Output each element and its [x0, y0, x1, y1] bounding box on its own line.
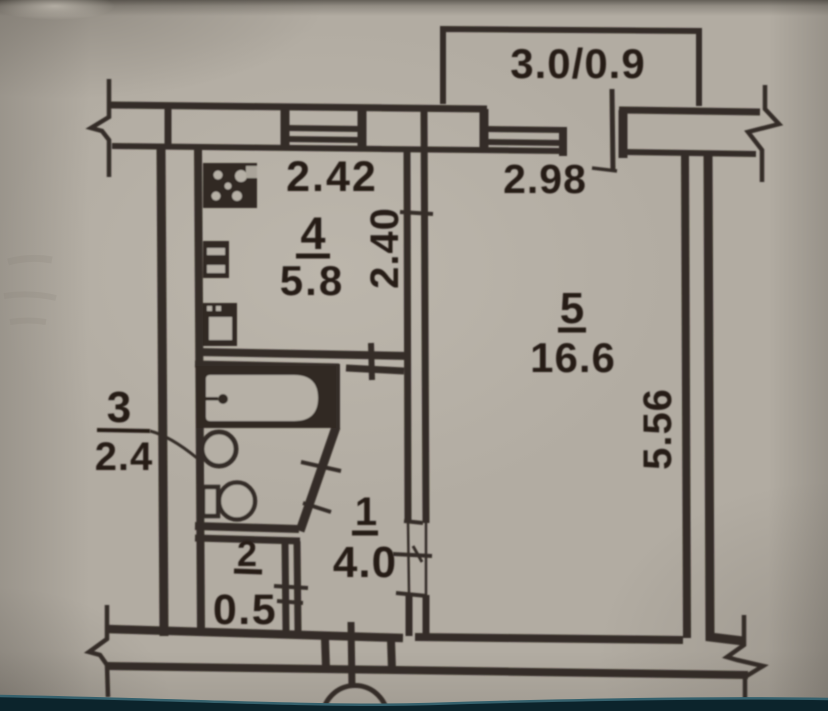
svg-text:5.8: 5.8 [280, 257, 344, 304]
svg-text:1: 1 [355, 490, 377, 534]
svg-text:3: 3 [107, 383, 131, 432]
svg-text:4: 4 [300, 208, 325, 259]
svg-text:0.5: 0.5 [213, 586, 277, 634]
svg-text:5: 5 [560, 284, 584, 333]
svg-text:5.56: 5.56 [636, 388, 680, 470]
svg-text:4.0: 4.0 [333, 538, 397, 587]
svg-text:2.42: 2.42 [286, 153, 378, 201]
svg-text:2.4: 2.4 [95, 435, 154, 479]
svg-text:2: 2 [237, 533, 257, 574]
svg-text:2.40: 2.40 [363, 207, 407, 289]
svg-text:3.0/0.9: 3.0/0.9 [510, 40, 645, 87]
svg-text:2.98: 2.98 [503, 156, 587, 202]
svg-text:16.6: 16.6 [530, 334, 616, 381]
